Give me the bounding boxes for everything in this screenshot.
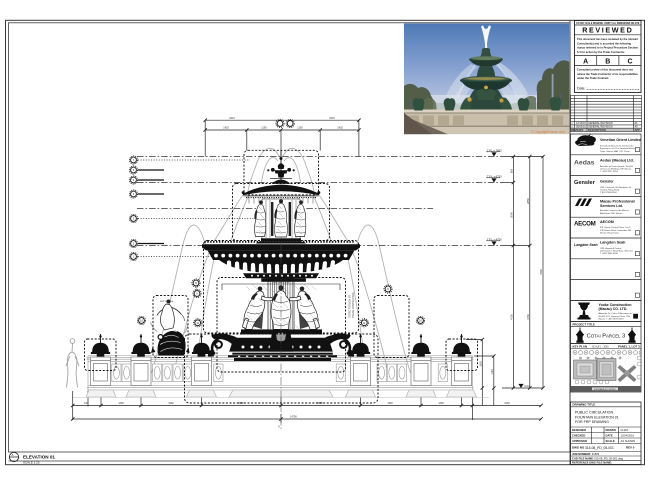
svg-text:DRAWN: DRAWN bbox=[606, 428, 616, 432]
svg-text:REVIEWED: REVIEWED bbox=[582, 26, 633, 35]
svg-text:18/F Hopewell Centre,: 18/F Hopewell Centre, bbox=[600, 247, 622, 250]
svg-text:FRP STATUE: FRP STATUE bbox=[160, 300, 174, 303]
svg-text:5.4 for action by the Trade Co: 5.4 for action by the Trade Contractor. bbox=[577, 50, 625, 54]
svg-text:1960: 1960 bbox=[387, 402, 393, 405]
svg-text:A: A bbox=[12, 453, 14, 457]
svg-text:Alameda Dr. Carlos D'Assumpcao: Alameda Dr. Carlos D'Assumpcao bbox=[599, 312, 633, 315]
svg-text:APPROVED: APPROVED bbox=[572, 439, 587, 443]
svg-text:KEY PLAN: KEY PLAN bbox=[573, 345, 588, 349]
svg-text:--: -- bbox=[12, 459, 14, 463]
svg-text:Date :: Date : bbox=[577, 87, 587, 91]
svg-text:AECOM: AECOM bbox=[574, 221, 596, 228]
svg-text:Taipa, Macau SAR, P.R. China: Taipa, Macau SAR, P.R. China bbox=[600, 150, 630, 153]
svg-text:REFERENCE DWG FILE NAME:: REFERENCE DWG FILE NAME: bbox=[572, 461, 612, 465]
svg-text:T 852.2596.8200: T 852.2596.8200 bbox=[600, 192, 617, 194]
svg-text:2000: 2000 bbox=[509, 212, 513, 218]
svg-text:ESTRADA DO ISTMO: ESTRADA DO ISTMO bbox=[594, 388, 616, 391]
svg-text:B: B bbox=[605, 59, 610, 66]
svg-text:2615: 2615 bbox=[229, 117, 235, 120]
svg-text:1960: 1960 bbox=[168, 402, 174, 405]
svg-text:-: - bbox=[596, 435, 597, 438]
svg-text:1150: 1150 bbox=[491, 369, 494, 375]
svg-text:138 Shatin Rural Committee Rd: 138 Shatin Rural Committee Rd bbox=[600, 229, 632, 232]
svg-text:DRAWING TITLE: DRAWING TITLE bbox=[573, 403, 596, 407]
svg-text:ELEVATION 01: ELEVATION 01 bbox=[23, 454, 55, 459]
svg-text:Avenida da Praia Grande, No.40: Avenida da Praia Grande, No.409 bbox=[600, 165, 634, 168]
svg-text:2850: 2850 bbox=[526, 198, 530, 204]
svg-text:1380: 1380 bbox=[118, 402, 124, 405]
svg-text:1190: 1190 bbox=[261, 127, 267, 130]
svg-text:SCALE 1 : 1000: SCALE 1 : 1000 bbox=[592, 345, 609, 348]
svg-text:Services Ltd.: Services Ltd. bbox=[600, 204, 623, 208]
svg-text:12/04/2016: 12/04/2016 bbox=[621, 434, 635, 438]
svg-text:T +852 2830 3500: T +852 2830 3500 bbox=[600, 253, 619, 255]
svg-text:2260: 2260 bbox=[504, 402, 510, 405]
svg-text:AS SHOWN: AS SHOWN bbox=[621, 439, 636, 443]
svg-text:CAD FILE NAME:315-08_PD_05-001: CAD FILE NAME:315-08_PD_05-001.dwg bbox=[572, 456, 624, 460]
svg-text:1190: 1190 bbox=[297, 127, 303, 130]
svg-text:DO NOT SCALE DRAWING. VERIFY A: DO NOT SCALE DRAWING. VERIFY ALL DIMENSI… bbox=[576, 21, 639, 25]
svg-text:JOB NUMBER: 31503: JOB NUMBER: 31503 bbox=[572, 452, 600, 456]
svg-text:4750: 4750 bbox=[509, 314, 513, 320]
svg-text:315-08_PD_05-001: 315-08_PD_05-001 bbox=[585, 446, 614, 450]
svg-text:4750: 4750 bbox=[526, 314, 530, 320]
svg-text:183 Queen's Road East, Wanchai: 183 Queen's Road East, Wanchai bbox=[600, 250, 633, 253]
svg-text:No.411-417, Dynasty Plaza 17/H: No.411-417, Dynasty Plaza 17/H, bbox=[599, 315, 632, 318]
svg-text:PROJECT TITLE: PROJECT TITLE bbox=[573, 322, 596, 326]
svg-text:Macau T +853 2875 0633: Macau T +853 2875 0633 bbox=[599, 318, 625, 320]
svg-text:Avenida Comercial de Macau,: Avenida Comercial de Macau, bbox=[600, 209, 630, 212]
svg-text:1650: 1650 bbox=[479, 361, 482, 367]
svg-text:16/F, Centrium, 60 Wyndham St,: 16/F, Centrium, 60 Wyndham St, bbox=[600, 186, 632, 189]
svg-text:Shatin, Hong Kong: Shatin, Hong Kong bbox=[600, 231, 619, 234]
svg-text:under the Trade Contract.: under the Trade Contract. bbox=[577, 76, 609, 80]
svg-text:AIA Tower 19/F, Macau: AIA Tower 19/F, Macau bbox=[600, 212, 623, 215]
svg-text:FRP SECTION: FRP SECTION bbox=[273, 281, 289, 284]
svg-text:CHAO: CHAO bbox=[621, 428, 629, 432]
svg-text:Esperanca, s/n The Venetian Ma: Esperanca, s/n The Venetian Macao bbox=[600, 147, 636, 150]
svg-text:CHECKED: CHECKED bbox=[572, 434, 585, 438]
svg-text:Gensler: Gensler bbox=[574, 180, 596, 186]
svg-text:Langdon·Seah: Langdon·Seah bbox=[574, 243, 598, 247]
svg-text:Central, Hong Kong: Central, Hong Kong bbox=[600, 188, 620, 191]
svg-text:FOUNTAIN ELEVATION 01: FOUNTAIN ELEVATION 01 bbox=[575, 415, 619, 419]
svg-text:SCALE 1:25: SCALE 1:25 bbox=[23, 460, 40, 464]
svg-text:Gensler: Gensler bbox=[600, 179, 614, 183]
svg-text:© CopyrightFrance.com: © CopyrightFrance.com bbox=[531, 130, 565, 134]
svg-text:(Macau) CO. LTD.: (Macau) CO. LTD. bbox=[599, 307, 628, 311]
svg-text:430: 430 bbox=[84, 402, 89, 405]
svg-text:T +853 2871 5953: T +853 2871 5953 bbox=[600, 171, 619, 173]
svg-text:2615: 2615 bbox=[329, 117, 335, 120]
svg-text:850: 850 bbox=[509, 168, 513, 173]
svg-text:PANEL 1, LOT 3: PANEL 1, LOT 3 bbox=[618, 345, 640, 349]
svg-text:FOR FRP DRAWING: FOR FRP DRAWING bbox=[575, 420, 609, 424]
svg-text:SCALE: SCALE bbox=[606, 439, 615, 443]
svg-text:1425: 1425 bbox=[223, 127, 229, 130]
svg-text:8/F, Grand Central Plaza, Twr: 8/F, Grand Central Plaza, Twr 2, bbox=[600, 226, 631, 229]
svg-text:1380: 1380 bbox=[438, 402, 444, 405]
svg-text:Estrada da Baia de N. Senhora: Estrada da Baia de N. Senhora da bbox=[600, 145, 634, 148]
svg-text:AECOM: AECOM bbox=[600, 220, 614, 224]
svg-text:REV 0: REV 0 bbox=[626, 446, 635, 450]
svg-text:Aedas (Macau) Ltd.: Aedas (Macau) Ltd. bbox=[600, 159, 634, 163]
svg-text:7600: 7600 bbox=[539, 269, 543, 275]
svg-text:DESIGNED: DESIGNED bbox=[572, 428, 586, 432]
svg-text:14756: 14756 bbox=[290, 416, 297, 419]
svg-text:DATE: DATE bbox=[606, 434, 613, 438]
svg-text:Venetian Orient Limited: Venetian Orient Limited bbox=[600, 138, 642, 142]
svg-text:-: - bbox=[596, 440, 597, 443]
svg-text:DWG NO: DWG NO bbox=[572, 446, 585, 450]
svg-text:Aedas: Aedas bbox=[574, 160, 595, 167]
svg-text:TRADE CONTRACTOR: TRADE CONTRACTOR bbox=[352, 292, 355, 318]
svg-text:PUBLIC CIRCULATION: PUBLIC CIRCULATION bbox=[575, 411, 613, 415]
svg-text:Langdon Seah: Langdon Seah bbox=[600, 241, 626, 245]
svg-text:C: C bbox=[627, 59, 632, 66]
svg-text:1425: 1425 bbox=[337, 127, 343, 130]
svg-text:A: A bbox=[583, 59, 588, 66]
